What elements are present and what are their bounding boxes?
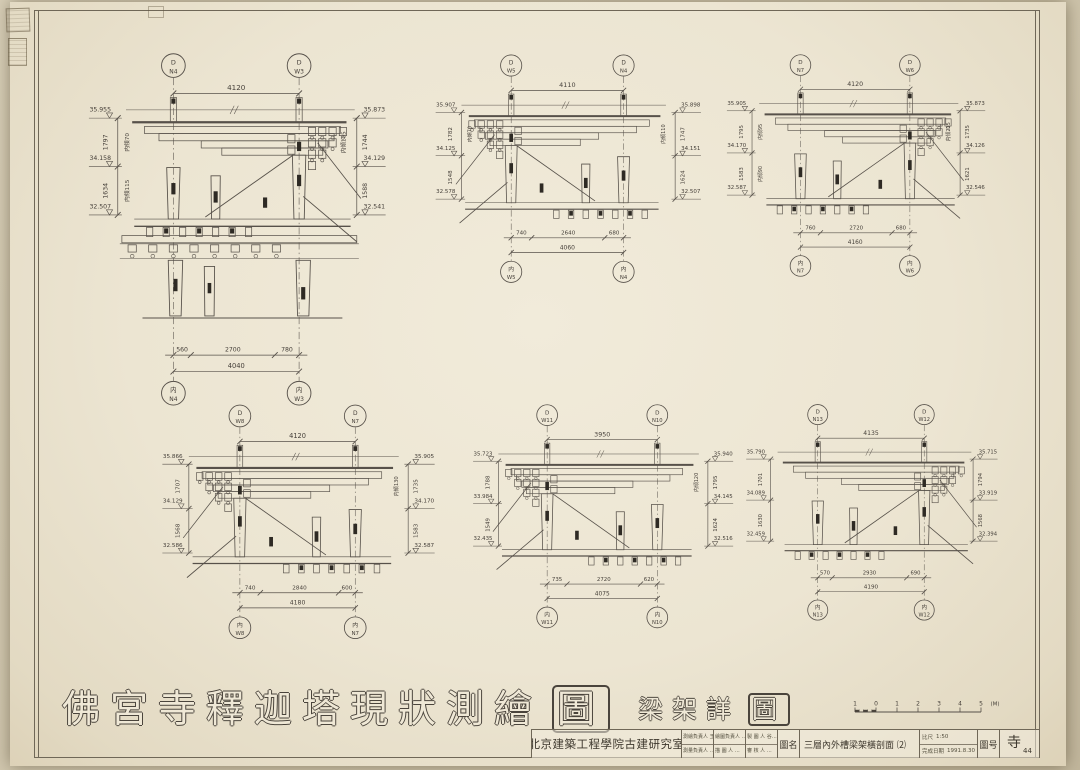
svg-text:35.790: 35.790: [747, 449, 765, 455]
svg-text:34.158: 34.158: [89, 155, 111, 162]
svg-text:N7: N7: [351, 631, 359, 637]
svg-text:4060: 4060: [560, 244, 575, 251]
svg-text:N13: N13: [813, 417, 823, 423]
drawing-title: 佛宮寺釋迦塔現狀測繪圖: [62, 678, 610, 733]
detail-drawing-6: DN13DW12413535.79034.08932.4591701163035…: [720, 398, 1008, 632]
svg-text:32.586: 32.586: [163, 543, 183, 549]
svg-text:4: 4: [958, 701, 962, 708]
svg-text:2840: 2840: [292, 585, 307, 591]
svg-text:内傾70: 内傾70: [123, 133, 131, 152]
staff-entry: 審 核 人 …: [746, 745, 777, 759]
svg-text:内: 内: [907, 259, 913, 267]
svg-text:4160: 4160: [848, 240, 863, 246]
svg-text:内: 内: [170, 385, 176, 394]
svg-text:5: 5: [979, 701, 983, 708]
svg-text:0: 0: [874, 701, 878, 708]
date-value: 1991.8.30: [947, 748, 975, 754]
svg-text:1795: 1795: [713, 476, 719, 490]
svg-text:33.919: 33.919: [979, 490, 997, 496]
svg-text:内傾215: 内傾215: [945, 122, 952, 141]
svg-text:内傾70: 内傾70: [467, 126, 474, 143]
svg-text:内傾90: 内傾90: [757, 166, 764, 182]
svg-text:1735: 1735: [414, 479, 420, 494]
svg-text:4040: 4040: [228, 362, 245, 370]
svg-text:内: 内: [508, 265, 514, 273]
svg-text:4190: 4190: [864, 585, 879, 591]
scale-row: 比尺 1:50: [920, 730, 977, 745]
svg-text:D: D: [171, 59, 176, 67]
svg-text:W11: W11: [541, 418, 553, 424]
staff-entry: 測量負責人 …: [682, 745, 713, 759]
staff-entry: 繪圖負責人 …: [714, 730, 745, 745]
svg-text:D: D: [238, 410, 243, 417]
svg-text:3: 3: [937, 701, 941, 708]
svg-text:2700: 2700: [225, 346, 241, 353]
staff-entry: 測繪負責人 王…: [682, 730, 713, 745]
svg-text:1568: 1568: [978, 514, 984, 527]
drawing-subtitle-boxed-char: 圖: [748, 693, 790, 726]
svg-text:内: 内: [815, 603, 820, 611]
svg-text:2930: 2930: [863, 571, 876, 577]
svg-text:1744: 1744: [362, 134, 369, 150]
svg-text:内傾115: 内傾115: [123, 179, 131, 202]
svg-text:560: 560: [176, 346, 188, 353]
scale-label: 比尺: [922, 733, 933, 741]
svg-text:内傾120: 内傾120: [693, 473, 700, 492]
svg-text:1: 1: [895, 701, 899, 708]
svg-text:(M): (M): [990, 702, 999, 708]
svg-text:32.394: 32.394: [979, 531, 998, 537]
svg-text:2: 2: [916, 701, 920, 708]
detail-drawing-1: DN4DW3412035.95534.15832.50717971634内傾70…: [58, 46, 398, 419]
institute-name: 北京建築工程學院古建研究室: [532, 730, 682, 758]
svg-text:34.126: 34.126: [966, 143, 985, 149]
graphic-scale-bar: 1012345(M): [845, 698, 1023, 720]
svg-text:内: 内: [296, 385, 302, 394]
svg-text:680: 680: [609, 231, 620, 237]
svg-text:35.905: 35.905: [727, 101, 746, 107]
svg-text:D: D: [297, 59, 302, 67]
drawing-title-text: 佛宮寺釋迦塔現狀測繪: [62, 687, 542, 731]
svg-text:内: 内: [798, 259, 804, 267]
svg-text:32.587: 32.587: [414, 543, 434, 549]
svg-text:34.089: 34.089: [747, 490, 765, 496]
svg-text:35.715: 35.715: [979, 449, 997, 455]
svg-text:D: D: [816, 410, 820, 416]
svg-text:34.125: 34.125: [436, 146, 456, 152]
svg-text:2720: 2720: [597, 577, 611, 583]
svg-text:32.435: 32.435: [474, 536, 493, 542]
svg-text:34.151: 34.151: [681, 146, 700, 152]
svg-text:1583: 1583: [739, 167, 745, 181]
sheet-number-value: 寺 44: [1000, 730, 1040, 758]
svg-text:D: D: [509, 61, 514, 67]
svg-text:1747: 1747: [680, 127, 686, 142]
svg-text:35.905: 35.905: [414, 454, 434, 460]
svg-text:W5: W5: [507, 275, 516, 281]
svg-text:内: 内: [237, 621, 243, 629]
svg-text:32.546: 32.546: [966, 185, 985, 191]
svg-text:1549: 1549: [485, 517, 491, 531]
svg-text:4135: 4135: [863, 430, 879, 437]
svg-text:33.984: 33.984: [474, 494, 493, 500]
svg-text:D: D: [798, 60, 803, 66]
sheet-number-index: 44: [1023, 747, 1032, 758]
date-row: 完成日期 1991.8.30: [920, 745, 977, 759]
svg-text:32.587: 32.587: [727, 185, 746, 191]
svg-text:内: 内: [654, 611, 660, 619]
svg-text:4120: 4120: [227, 83, 246, 92]
svg-text:32.578: 32.578: [436, 189, 456, 195]
svg-text:4075: 4075: [595, 591, 610, 597]
svg-text:3950: 3950: [594, 431, 610, 438]
svg-text:W3: W3: [294, 68, 304, 75]
svg-text:内: 内: [921, 603, 926, 611]
svg-text:34.129: 34.129: [163, 498, 183, 504]
detail-drawing-4: DW8DN7412035.86634.12932.5861707156835.9…: [134, 398, 446, 651]
svg-text:1583: 1583: [414, 523, 420, 538]
svg-text:N4: N4: [620, 68, 628, 74]
staff-cell-1: 測繪負責人 王… 測量負責人 …: [682, 730, 714, 758]
svg-text:570: 570: [820, 571, 830, 577]
svg-text:35.907: 35.907: [436, 102, 456, 108]
drawing-name-value: 三層內外槽梁架橫剖面 ⑵: [800, 730, 920, 758]
svg-text:35.898: 35.898: [681, 102, 701, 108]
sheet-number-label: 圖号: [978, 730, 1000, 758]
svg-text:D: D: [655, 410, 660, 416]
svg-text:N7: N7: [351, 419, 359, 425]
staff-entry: 製 圖 人 谷…: [746, 730, 777, 745]
svg-text:1621: 1621: [965, 167, 971, 181]
svg-text:32.507: 32.507: [681, 189, 701, 195]
svg-text:1634: 1634: [102, 183, 109, 199]
svg-text:4180: 4180: [290, 600, 306, 607]
svg-text:D: D: [908, 60, 913, 66]
svg-text:D: D: [922, 410, 926, 416]
drawing-title-boxed-char: 圖: [552, 685, 610, 733]
svg-text:N4: N4: [620, 275, 628, 281]
title-block: 北京建築工程學院古建研究室 測繪負責人 王… 測量負責人 … 繪圖負責人 … 描…: [531, 729, 1040, 758]
svg-text:780: 780: [281, 346, 293, 353]
svg-text:1630: 1630: [758, 514, 764, 527]
staff-cell-3: 製 圖 人 谷… 審 核 人 …: [746, 730, 778, 758]
svg-text:D: D: [545, 410, 550, 416]
detail-drawing-3: DN7DW6412035.90534.17032.58717951583内傾95…: [700, 48, 996, 288]
svg-text:1624: 1624: [713, 517, 719, 531]
svg-text:1588: 1588: [362, 183, 369, 199]
svg-text:34.129: 34.129: [363, 155, 385, 162]
svg-text:2720: 2720: [849, 226, 863, 232]
scale-value: 1:50: [936, 734, 948, 740]
archive-stamp: [6, 8, 31, 33]
sheet-number-series: 寺: [1007, 732, 1021, 752]
staff-entry: 描 圖 人 …: [714, 745, 745, 759]
svg-text:690: 690: [910, 571, 920, 577]
svg-text:W8: W8: [235, 419, 244, 425]
svg-text:1735: 1735: [965, 125, 971, 139]
svg-text:内傾130: 内傾130: [392, 476, 400, 496]
svg-text:1788: 1788: [485, 475, 491, 489]
svg-text:34.170: 34.170: [414, 498, 434, 504]
detail-drawing-5: DW11DN10395035.72333.98432.4351788154935…: [446, 398, 744, 640]
svg-text:4110: 4110: [559, 81, 575, 89]
svg-text:W11: W11: [541, 620, 553, 626]
svg-text:内傾95: 内傾95: [757, 124, 764, 140]
staff-cell-2: 繪圖負責人 … 描 圖 人 …: [714, 730, 746, 758]
svg-text:1568: 1568: [175, 523, 181, 538]
svg-text:1: 1: [853, 701, 857, 708]
svg-text:1797: 1797: [102, 134, 109, 150]
svg-text:35.873: 35.873: [966, 101, 985, 107]
svg-text:内傾110: 内傾110: [660, 124, 667, 144]
svg-text:32.459: 32.459: [747, 531, 765, 537]
svg-text:1795: 1795: [739, 125, 745, 139]
page-mark: [148, 6, 164, 18]
svg-text:4120: 4120: [847, 81, 863, 88]
svg-text:W12: W12: [919, 417, 930, 423]
svg-text:32.541: 32.541: [363, 203, 385, 210]
svg-text:620: 620: [644, 577, 655, 583]
detail-drawing-2: DW5DN4411035.90734.12532.57817821548内傾70…: [408, 48, 712, 295]
svg-text:34.170: 34.170: [727, 143, 746, 149]
svg-text:1701: 1701: [758, 473, 764, 486]
svg-text:内: 内: [352, 621, 358, 629]
svg-text:N7: N7: [797, 68, 804, 74]
svg-text:35.723: 35.723: [474, 451, 493, 457]
svg-text:1782: 1782: [448, 127, 454, 141]
date-label: 完成日期: [922, 747, 944, 755]
svg-text:600: 600: [342, 585, 353, 591]
svg-text:35.866: 35.866: [163, 454, 183, 460]
drawing-subtitle-text: 梁架詳: [638, 695, 740, 724]
svg-text:1548: 1548: [448, 170, 454, 185]
scale-date-cell: 比尺 1:50 完成日期 1991.8.30: [920, 730, 978, 758]
svg-text:W5: W5: [507, 68, 516, 74]
svg-text:内傾105: 内傾105: [339, 131, 347, 154]
svg-text:680: 680: [896, 226, 907, 232]
svg-text:1794: 1794: [978, 472, 984, 486]
svg-text:D: D: [353, 410, 358, 417]
svg-text:N7: N7: [797, 269, 804, 275]
svg-text:N10: N10: [652, 620, 663, 626]
svg-text:W12: W12: [919, 613, 930, 619]
svg-text:735: 735: [552, 577, 562, 583]
drawing-name-label: 圖名: [778, 730, 800, 758]
svg-text:N4: N4: [169, 68, 177, 75]
svg-text:740: 740: [245, 585, 256, 591]
svg-text:W8: W8: [235, 631, 244, 637]
svg-text:内: 内: [621, 265, 627, 273]
svg-text:D: D: [621, 61, 626, 67]
svg-text:32.507: 32.507: [89, 203, 111, 210]
svg-text:760: 760: [805, 226, 816, 232]
svg-text:35.873: 35.873: [363, 106, 385, 113]
svg-text:W6: W6: [906, 68, 914, 74]
svg-text:N10: N10: [652, 418, 663, 424]
archive-stamp-2: [8, 38, 27, 66]
drawing-subtitle: 梁架詳圖: [638, 690, 790, 726]
svg-text:W6: W6: [906, 269, 914, 275]
svg-text:1624: 1624: [680, 170, 686, 185]
svg-text:4120: 4120: [289, 432, 306, 440]
svg-text:2640: 2640: [561, 231, 576, 237]
svg-text:N13: N13: [813, 613, 823, 619]
scanned-sheet: 佛宮寺釋迦塔現狀測繪圖 梁架詳圖 1012345(M) 北京建築工程學院古建研究…: [0, 0, 1080, 770]
svg-text:1707: 1707: [175, 479, 181, 494]
svg-text:35.955: 35.955: [89, 106, 111, 113]
svg-text:内: 内: [544, 611, 550, 619]
svg-text:740: 740: [516, 231, 527, 237]
